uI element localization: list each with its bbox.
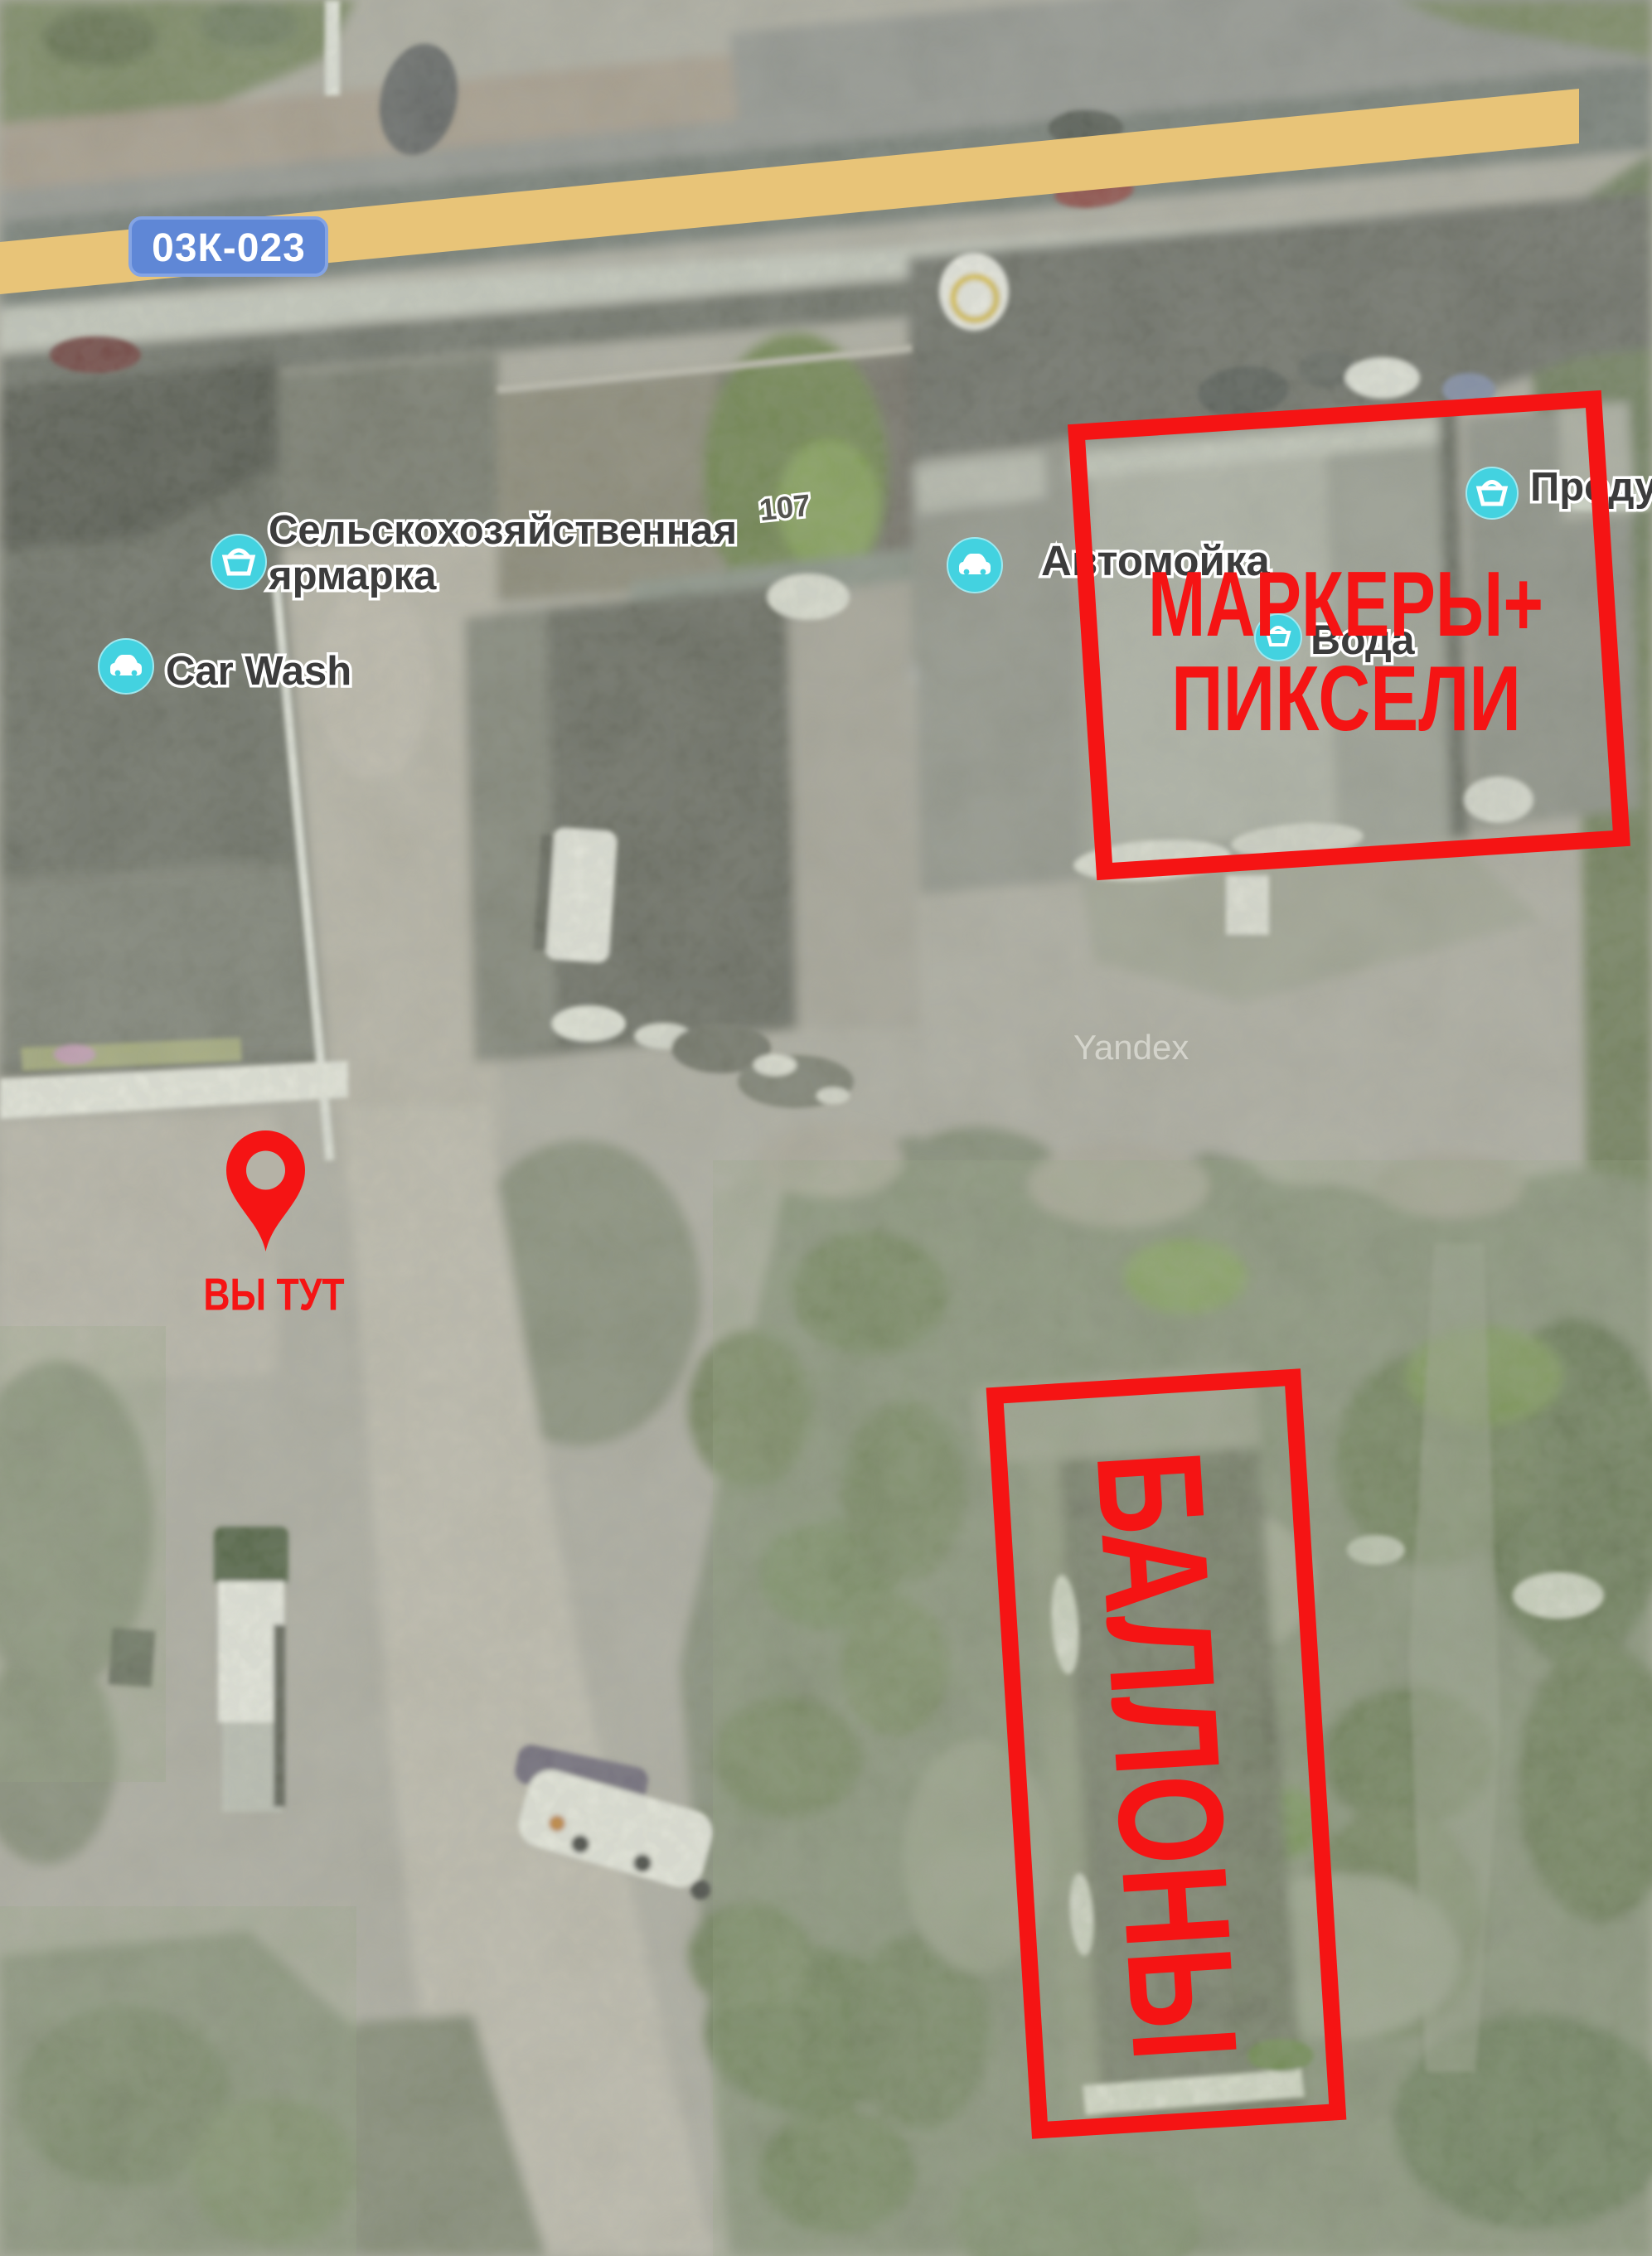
svg-text:107: 107 (758, 488, 812, 527)
svg-text:ярмарка: ярмарка (268, 554, 437, 598)
svg-text:ПИКСЕЛИ: ПИКСЕЛИ (1171, 648, 1521, 750)
svg-text:Yandex: Yandex (1073, 1028, 1189, 1067)
svg-text:Сельскохозяйственная: Сельскохозяйственная (269, 508, 737, 553)
svg-text:Car Wash: Car Wash (166, 649, 351, 694)
svg-text:ВЫ ТУТ: ВЫ ТУТ (203, 1269, 345, 1320)
svg-text:МАРКЕРЫ+: МАРКЕРЫ+ (1148, 552, 1543, 655)
svg-text:03К-023: 03К-023 (152, 226, 306, 270)
